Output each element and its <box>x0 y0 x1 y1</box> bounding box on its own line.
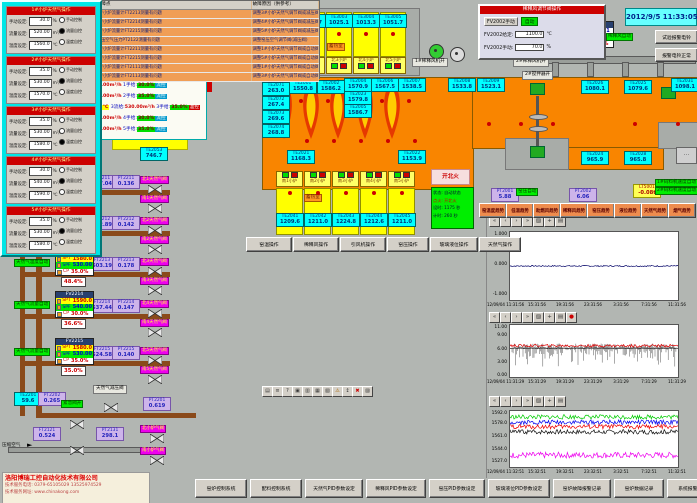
nav-button-玻璃液位PID参数设定[interactable]: 玻璃液位PID参数设定 <box>488 479 550 498</box>
comp-air-arrow: ► <box>27 442 32 449</box>
burner-setpoint-input[interactable]: 540.00 <box>29 179 52 188</box>
green-status-label: 紧急阀开 <box>61 400 83 408</box>
chart-xtick: 11:32:51 <box>662 469 692 474</box>
south-port-3[interactable]: 南3小炉 <box>332 171 359 187</box>
burner-mode-radio[interactable]: 温度自控 <box>59 189 82 195</box>
valve-position-box: 36.6% <box>61 319 86 329</box>
trend-chart-1: «‹›»▨+▤1.0000.000-1.00012/09/04 11:31:56… <box>486 214 697 310</box>
datetime-display: 2012/9/5 11:33:05 <box>625 8 697 26</box>
chart-toolbar-icon[interactable]: ▤ <box>555 396 566 407</box>
chart-toolbar-icon[interactable]: ▤ <box>555 312 566 323</box>
measure-point-dot <box>386 139 390 143</box>
burner-mode-radio[interactable]: 温度自控 <box>59 139 82 145</box>
green-status-label: 2#码料机速度自动 <box>655 187 697 195</box>
chart-ytick: 9.00 <box>487 333 507 338</box>
measure-point-dot <box>551 122 555 126</box>
burner-mode-radio[interactable]: 手动控制 <box>59 17 82 23</box>
chart-toolbar-icon[interactable]: » <box>522 396 533 407</box>
chart-toolbar-icon[interactable]: ▨ <box>533 312 544 323</box>
comp-air-label: 压缩空气 <box>2 442 20 448</box>
valve-label: 南5天然气阀 <box>140 366 169 374</box>
measure-point-dot <box>299 99 303 103</box>
measure-point-dot <box>344 191 348 195</box>
tag-TE2001: TE20011550.8 <box>289 80 317 94</box>
trend-chart-2: «‹›»▨+▤●11.009.006.003.000.0012/09/04 11… <box>486 310 697 394</box>
nav-button-窑炉故障报警记录[interactable]: 窑炉故障报警记录 <box>553 479 611 498</box>
measure-point-dot <box>519 122 523 126</box>
tag-TE2022: TE20221153.9 <box>398 150 426 164</box>
chart-xtick: 7:31:29 <box>634 379 664 384</box>
dilution-popup-title: 稀释风调节阀操作 <box>480 6 604 14</box>
chart-plot-area <box>509 410 679 468</box>
dilution-auto-button[interactable]: 自动 <box>521 17 539 26</box>
op-button-窑温操作[interactable]: 窑温操作 <box>246 237 292 252</box>
chart-toolbar-icon[interactable]: › <box>511 312 522 323</box>
chart-xtick: 7:31:56 <box>634 302 664 307</box>
tag-TE2053: TE2053746.7 <box>140 147 168 161</box>
measure-point-dot <box>391 32 395 36</box>
nav-button-窑炉数据记录[interactable]: 窑炉数据记录 <box>614 479 664 498</box>
regen-column-south-3 <box>332 188 359 235</box>
tag-TE2071: TE2071263.0 <box>262 82 290 96</box>
alarm-bell-normal-button[interactable]: 报警电铃正常 <box>655 48 697 62</box>
north-port-3[interactable]: 北3小炉 <box>326 57 352 74</box>
company-web: 技术服务网址: www.chinakong.com <box>5 490 147 497</box>
regen-column-south-1 <box>276 188 303 235</box>
valve-label: 南4天然气阀 <box>140 319 169 327</box>
tag-TE2004: TE20041570.9 <box>344 78 372 92</box>
dilution-valve-popup: 稀释风调节阀操作 FV2002手动 自动 FV2002给定: 1100.0 ℃ … <box>478 4 606 60</box>
measure-point-dot <box>332 139 336 143</box>
chart-ytick: -1.000 <box>487 292 507 297</box>
stirrer-motor-icon <box>530 83 545 95</box>
burner-setpoint-input[interactable]: 35.0 <box>29 217 52 226</box>
chart-ytick: 0.000 <box>487 262 507 267</box>
manifold-drop-4 <box>657 62 664 77</box>
burner-setpoint-input[interactable]: 1560.0 <box>29 41 52 50</box>
chart-xtick: 19:31:29 <box>550 379 580 384</box>
measure-point-dot <box>326 99 330 103</box>
green-status-label: 天然气流量自动 <box>14 301 50 309</box>
burner-mode-radio[interactable]: 手动控制 <box>59 67 82 73</box>
op-button-稀释风操作[interactable]: 稀释风操作 <box>293 237 339 252</box>
tag-TE2072: TE2072267.4 <box>262 96 290 110</box>
valve-label: 南小炉气阀 <box>140 447 166 455</box>
chart-xtick: 23:31:29 <box>578 379 608 384</box>
tag-TE2006: TE20061567.5 <box>371 78 399 92</box>
chart-toolbar-icon[interactable]: ● <box>566 312 577 323</box>
chart-toolbar-icon[interactable]: « <box>489 312 500 323</box>
dilution-setpoint-label: FV2002给定: <box>484 31 513 38</box>
valve-label: 北2天然气阀 <box>140 217 169 225</box>
chart-toolbar-icon[interactable]: + <box>544 312 555 323</box>
burner-group-1: 1#小炉天然气操作手动设定:30.0%流量设定:520.00m³/h温度设定:1… <box>6 6 96 54</box>
op-button-引风机操作[interactable]: 引风机操作 <box>340 237 386 252</box>
valve-icon[interactable] <box>148 286 162 295</box>
chart-toolbar-icon[interactable]: › <box>511 396 522 407</box>
burner-mode-radio[interactable]: 流量自控 <box>59 78 82 84</box>
burner-gas-popup: 1#小炉天然气操作手动设定:30.0%流量设定:520.00m³/h温度设定:1… <box>0 0 102 257</box>
chart-plot-area <box>509 231 679 301</box>
burner-setpoint-input[interactable]: 530.00 <box>29 229 52 238</box>
chart-xtick: 19:32:51 <box>550 469 580 474</box>
chart-plot-area <box>509 324 679 378</box>
burner-setpoint-input[interactable]: 30.0 <box>29 17 52 26</box>
chart-ytick: 0.00 <box>487 373 507 378</box>
tag-TE2023: TE20231579.8 <box>344 91 372 105</box>
chart-xtick: 3:32:51 <box>606 469 636 474</box>
chart-ytick: 3.00 <box>487 360 507 365</box>
trend-button-低温趋势[interactable]: 低温趋势 <box>506 203 534 218</box>
burner-mode-radio[interactable]: 流量自控 <box>59 178 82 184</box>
green-status-label: 窑压自动 <box>516 188 538 196</box>
burner-setpoint-input[interactable]: 530.00 <box>29 129 52 138</box>
valve-icon[interactable] <box>148 185 162 194</box>
chart-xtick: 23:32:51 <box>578 469 608 474</box>
north-port-5[interactable]: 北5小炉 <box>380 57 406 74</box>
tag-TE2041: TE20411209.6 <box>276 213 304 227</box>
tag-PT2002: PT20026.06 <box>569 188 597 202</box>
measure-point-dot <box>364 32 368 36</box>
tag-TE2024: TE2024965.9 <box>581 151 609 165</box>
chart-toolbar-icon[interactable]: « <box>489 396 500 407</box>
burner-group-title: 1#小炉天然气操作 <box>7 7 95 15</box>
burner-setpoint-input[interactable]: 1580.0 <box>29 141 52 150</box>
fan-icon <box>429 44 444 59</box>
measure-point-dot <box>413 139 417 143</box>
valve-label: 南2天然气阀 <box>140 236 169 244</box>
scada-furnace-screen: ··· 煤气 ◄ 软化水 ◄ 压缩空气 ► 助燃风开 蓄热室 蓄热室 1#引风机… <box>0 0 697 503</box>
tag-TE2043: TE20431224.8 <box>332 213 360 227</box>
trend-button-稀释风趋势[interactable]: 稀释风趋势 <box>560 203 588 218</box>
burner-group-title: 5#小炉天然气操作 <box>7 207 95 215</box>
nav-button-稀释风PID参数设定[interactable]: 稀释风PID参数设定 <box>366 479 426 498</box>
trend-button-液位趋势[interactable]: 液位趋势 <box>614 203 642 218</box>
working-end-notch <box>658 122 697 149</box>
tag-TE2028: TE2028965.8 <box>624 151 652 165</box>
burner-setpoint-input[interactable]: 1590.0 <box>29 191 52 200</box>
chart-toolbar-icon[interactable]: » <box>522 312 533 323</box>
chart-ytick: 1527.0 <box>487 459 507 464</box>
op-button-玻璃液位操作[interactable]: 玻璃液位操作 <box>430 237 478 252</box>
trend-button-窑压趋势[interactable]: 窑压趋势 <box>587 203 615 218</box>
tag-TE2074: TE2074268.8 <box>262 124 290 138</box>
south-port-1[interactable]: 南1小炉 <box>276 171 303 187</box>
tag-TE3003: TE30031025.1 <box>325 14 353 28</box>
burner-group-title: 2#小炉天然气操作 <box>7 57 95 65</box>
tag-TE2042: TE20421211.0 <box>304 213 332 227</box>
green-status-label: 天然气温度自动 <box>14 259 50 267</box>
regenerator-label-south: 蓄热室 <box>304 194 322 202</box>
nav-button-窑炉控制系统[interactable]: 窑炉控制系统 <box>195 479 247 498</box>
measure-point-dot <box>400 191 404 195</box>
valve-icon[interactable] <box>70 420 84 429</box>
nav-button-天然气PID参数设定[interactable]: 天然气PID参数设定 <box>305 479 363 498</box>
tag-PT2131: PT2131298.1 <box>96 427 124 441</box>
chart-toolbar-icon[interactable]: ‹ <box>500 396 511 407</box>
chart-xtick: 23:31:56 <box>578 302 608 307</box>
chart-toolbar-icon[interactable]: ‹ <box>500 312 511 323</box>
manifold-drop-3 <box>622 62 629 77</box>
valve-icon[interactable] <box>104 403 118 412</box>
trend-button-助燃风趋势[interactable]: 助燃风趋势 <box>533 203 561 218</box>
burner-group-title: 4#小炉天然气操作 <box>7 157 95 165</box>
burner-mode-radio[interactable]: 流量自控 <box>59 128 82 134</box>
measure-point-dot <box>359 139 363 143</box>
burner-mode-radio[interactable]: 温度自控 <box>59 39 82 45</box>
chart-xtick: 15:32:51 <box>522 469 552 474</box>
valve-label: 北小炉气阀 <box>140 425 166 433</box>
chart-ytick: 6.00 <box>487 347 507 352</box>
tag-TE2005: TE20051586.7 <box>344 104 372 118</box>
trend-chart-3: «‹›»▨+▤1592.01578.01561.01544.01527.012/… <box>486 394 697 478</box>
burner-group-3: 3#小炉天然气操作手动设定:35.0%流量设定:530.00m³/h温度设定:1… <box>6 106 96 154</box>
chart-xtick: 11:31:29 <box>662 379 692 384</box>
chart-xtick: 3:31:56 <box>606 302 636 307</box>
measure-point-dot <box>407 99 411 103</box>
north-port-4[interactable]: 北4小炉 <box>353 57 379 74</box>
valve-icon[interactable] <box>148 204 162 213</box>
chart-xtick: 11:31:56 <box>662 302 692 307</box>
tag-PT2211: PT22110.136 <box>112 175 140 189</box>
tag-TE2002: TE20021586.2 <box>317 80 345 94</box>
burner-setpoint-input[interactable]: 1570.0 <box>29 91 52 100</box>
company-info: 洛阳博瑞工控自动化技术有限公司 技术服务电话: 0379-65105029 13… <box>2 472 150 503</box>
burner-mode-radio[interactable]: 流量自控 <box>59 28 82 34</box>
burner-setpoint-input[interactable]: 35.0 <box>29 117 52 126</box>
burner-group-4: 4#小炉天然气操作手动设定:30.0%流量设定:540.00m³/h温度设定:1… <box>6 156 96 204</box>
valve-icon[interactable] <box>148 226 162 235</box>
stirrer-shaft <box>536 96 539 146</box>
company-phone: 技术服务电话: 0379-65105029 13525974529 <box>5 483 147 490</box>
green-status-label: 稀释风自动 <box>606 33 633 41</box>
valve-icon[interactable] <box>148 309 162 318</box>
burner-mode-radio[interactable]: 手动控制 <box>59 217 82 223</box>
trend-button-窑温度趋势[interactable]: 窑温度趋势 <box>479 203 507 218</box>
tag-TE2008: TE20081533.8 <box>448 78 476 92</box>
burner-setpoint-input[interactable]: 35.0 <box>29 67 52 76</box>
trend-button-天然气趋势[interactable]: 天然气趋势 <box>641 203 669 218</box>
tag-TE2031: TE20311098.1 <box>671 78 697 92</box>
chart-ytick: 1578.0 <box>487 421 507 426</box>
dilution-manual-label: FV2002手动: <box>484 44 513 51</box>
controller-FV2215: FV2215SPT1580.0SPF530.00CP35.0% <box>55 338 94 365</box>
dilution-setpoint-unit: ℃ <box>546 32 551 37</box>
south-port-4[interactable]: 南4小炉 <box>360 171 387 187</box>
burner-setpoint-input[interactable]: 30.0 <box>29 167 52 176</box>
valve-label: 北4天然气阀 <box>140 300 169 308</box>
lehr-entry: ··· <box>676 147 697 164</box>
trend-button-烟气趋势[interactable]: 烟气趋势 <box>668 203 696 218</box>
dilution-setpoint-input[interactable]: 1100.0 <box>515 31 544 38</box>
valve-position-box: 35.0% <box>61 366 86 376</box>
valve-label: 南3天然气阀 <box>140 277 169 285</box>
valve-label: 南1天然气阀 <box>140 195 169 203</box>
valve-icon[interactable] <box>148 375 162 384</box>
tag-TE2025: TE20251079.6 <box>624 80 652 94</box>
valve-icon[interactable] <box>70 446 84 455</box>
valve-label: 北5天然气阀 <box>140 347 169 355</box>
alarm-toolbar-icon[interactable]: ▨ <box>362 386 373 397</box>
stirrer-disc-2 <box>529 126 548 132</box>
burner-mode-radio[interactable]: 手动控制 <box>59 117 82 123</box>
tag-TE3004: TE30041013.3 <box>352 14 380 28</box>
tag-TE2007: TE20071538.5 <box>398 78 426 92</box>
op-button-窑压操作[interactable]: 窑压操作 <box>387 237 429 252</box>
nav-button-窑压PID参数设定[interactable]: 窑压PID参数设定 <box>429 479 485 498</box>
tag-PT2201: PT22010.619 <box>143 397 171 411</box>
tag-TE3005: TE30051051.7 <box>379 14 407 28</box>
burner-group-title: 3#小炉天然气操作 <box>7 107 95 115</box>
valve-icon[interactable] <box>148 356 162 365</box>
chart-xtick: 19:31:56 <box>550 302 580 307</box>
south-port-5[interactable]: 南5小炉 <box>388 171 415 187</box>
south-port-2[interactable]: 南2小炉 <box>304 171 331 187</box>
controller-FV2214: FV2214SPT1590.0SPF540.00CP30.0% <box>55 291 94 318</box>
equipment-label: 天然气减压阀 <box>93 385 127 394</box>
measure-point-dot <box>487 122 491 126</box>
tag-TE2026: TE20261080.1 <box>581 80 609 94</box>
measure-point-dot <box>337 32 341 36</box>
tag-TE2045: TE20451211.0 <box>388 213 416 227</box>
valve-label: 北1天然气阀 <box>140 176 169 184</box>
tag-TE2044: TE20441212.6 <box>360 213 388 227</box>
dilution-manual-input[interactable]: 70.0 <box>515 44 544 51</box>
equipment-label: 1#稀释风机开 <box>412 58 448 67</box>
tag-TE2021: TE20211168.3 <box>287 150 315 164</box>
dilution-manual-button[interactable]: FV2002手动 <box>484 17 518 26</box>
tag-PT2214: PT22140.147 <box>112 299 140 313</box>
burner-mode-radio[interactable]: 温度自控 <box>59 239 82 245</box>
tag-TE2073: TE2073269.6 <box>262 110 290 124</box>
measure-point-dot <box>372 191 376 195</box>
tag-TE2009: TE20091523.1 <box>477 78 505 92</box>
valve-icon[interactable] <box>150 434 164 443</box>
valve-icon[interactable] <box>148 267 162 276</box>
burner-mode-radio[interactable]: 温度自控 <box>59 89 82 95</box>
chart-ytick: 11.00 <box>487 325 507 330</box>
measure-point-dot <box>316 191 320 195</box>
chart-ytick: 1544.0 <box>487 447 507 452</box>
test-alarm-bell-button[interactable]: 试验报警电铃 <box>655 30 697 44</box>
chart-xtick: 15:31:29 <box>522 379 552 384</box>
tag-PT2215: PT22150.140 <box>112 346 140 360</box>
op-button-天然气操作[interactable]: 天然气操作 <box>479 237 521 252</box>
chart-xtick: 3:31:29 <box>606 379 636 384</box>
measure-point-dot <box>305 139 309 143</box>
burner-mode-radio[interactable]: 流量自控 <box>59 228 82 234</box>
tag-PT2213: PT22130.178 <box>112 257 140 271</box>
burner-group-5: 5#小炉天然气操作手动设定:35.0%流量设定:530.00m³/h温度设定:1… <box>6 206 96 254</box>
chart-toolbar-icon[interactable]: ▨ <box>533 396 544 407</box>
burner-setpoint-input[interactable]: 520.00 <box>29 29 52 38</box>
tag-PT2212: PT22120.142 <box>112 216 140 230</box>
nav-button-系统报警值设定[interactable]: 系统报警值设定 <box>667 479 697 498</box>
stirrer-disc-1 <box>529 114 548 120</box>
measure-point-dot <box>676 122 680 126</box>
measure-point-dot <box>633 122 637 126</box>
valve-icon[interactable] <box>148 328 162 337</box>
dilution-manual-unit: % <box>546 45 551 50</box>
valve-icon[interactable] <box>150 456 164 465</box>
burner-group-2: 2#小炉天然气操作手动设定:35.0%流量设定:530.00m³/h温度设定:1… <box>6 56 96 104</box>
regenerator-label-north: 蓄热室 <box>327 43 345 51</box>
valve-label: 北3天然气阀 <box>140 258 169 266</box>
fire-direction-box: 开北火 <box>431 169 470 185</box>
chart-ytick: 1561.0 <box>487 434 507 439</box>
regen-column-south-5 <box>388 188 415 235</box>
measure-point-dot <box>380 99 384 103</box>
green-status-label: 天然气流量自动 <box>14 348 50 356</box>
chart-xtick: 7:32:51 <box>634 469 664 474</box>
valve-position-box: 48.4% <box>61 277 86 287</box>
valve-icon[interactable] <box>148 245 162 254</box>
chart-xtick: 15:31:56 <box>522 302 552 307</box>
gas-main-bottom <box>36 413 196 418</box>
burner-setpoint-input[interactable]: 530.00 <box>29 79 52 88</box>
nav-button-配料控制系统[interactable]: 配料控制系统 <box>250 479 302 498</box>
stirrer-motor-icon <box>530 146 545 158</box>
chart-ytick: 1592.0 <box>487 411 507 416</box>
regen-column-south-4 <box>360 188 387 235</box>
company-name: 洛阳博瑞工控自动化技术有限公司 <box>5 474 147 483</box>
manifold-drop-2 <box>587 62 594 77</box>
fan-icon <box>450 47 465 62</box>
equipment-label: 2#搅拌器开 <box>522 71 553 80</box>
tag-PT2001: PT20015.88 <box>491 188 519 202</box>
firing-status-box: 状态: 自动状态 点火: 开北火 设时: 1175 秒 计时: 260 秒 <box>431 187 474 229</box>
burner-mode-radio[interactable]: 手动控制 <box>59 167 82 173</box>
chart-toolbar-icon[interactable]: + <box>544 396 555 407</box>
measure-point-dot <box>288 191 292 195</box>
burner-setpoint-input[interactable]: 1580.0 <box>29 241 52 250</box>
tag-FT2121: FT21210.524 <box>33 427 61 441</box>
